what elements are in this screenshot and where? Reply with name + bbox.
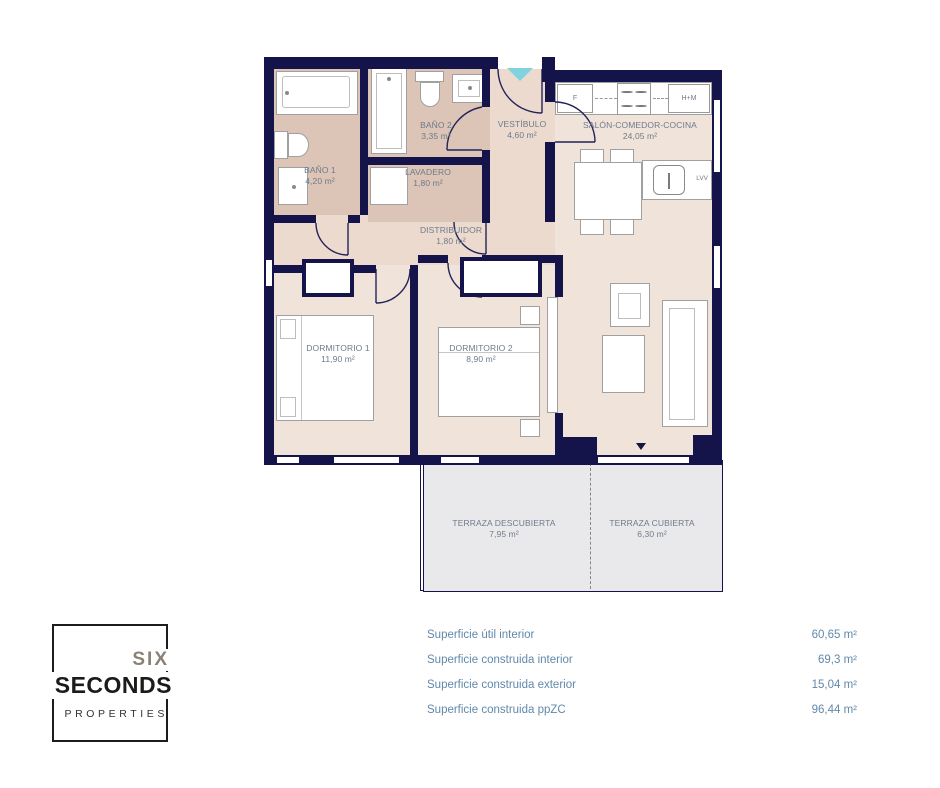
room-label-dorm2: DORMITORIO 28,90 m²: [426, 343, 536, 365]
room-label-bath1: BAÑO 14,20 m²: [282, 165, 358, 187]
wall-dorm1-dorm2: [410, 265, 418, 455]
wall-bath2-laundry: [368, 157, 490, 165]
window-dorm1-left: [265, 259, 273, 287]
floorplan-page: { "plan": { "rooms": { "bano1": { "name"…: [0, 0, 940, 788]
six-seconds-logo: SIX SECONDS PROPERTIES: [52, 624, 168, 742]
room-label-terrace-covered: TERRAZA CUBIERTA6,30 m²: [588, 518, 716, 540]
summary-row: Superficie construida interior 69,3 m²: [427, 647, 857, 672]
surface-summary-table: Superficie útil interior 60,65 m² Superf…: [427, 622, 857, 722]
window-salon-right-lower: [713, 245, 721, 289]
window-dorm2-bottom: [440, 456, 480, 464]
wardrobe-dorm2: [460, 257, 542, 297]
summary-value: 15,04 m²: [812, 679, 857, 691]
summary-label: Superficie construida interior: [427, 654, 573, 666]
summary-row: Superficie útil interior 60,65 m²: [427, 622, 857, 647]
wardrobe-dorm1: [302, 259, 354, 297]
wall-dorm2-salon-upper: [555, 255, 563, 297]
room-label-laundry: LAVADERO1,80 m²: [376, 167, 480, 189]
wall-bath2-vest-upper: [482, 69, 490, 107]
summary-value: 96,44 m²: [812, 704, 857, 716]
window-dorm1-corner: [276, 456, 300, 464]
wall-bath1-bottom-r: [348, 215, 360, 223]
room-label-terrace-open: TERRAZA DESCUBIERTA7,95 m²: [432, 518, 576, 540]
wall-top-left: [264, 57, 498, 69]
wall-salon-step-r: [693, 435, 722, 457]
window-salon-terrace: [597, 456, 690, 464]
room-label-salon: SALÓN-COMEDOR-COCINA24,05 m²: [564, 120, 716, 142]
wall-salon-step-l: [563, 437, 597, 457]
floor-plan: F H+M LVV BAÑO 14,20 m² BAÑO 23: [264, 57, 722, 591]
summary-value: 60,65 m²: [812, 629, 857, 641]
summary-label: Superficie construida ppZC: [427, 704, 566, 716]
room-label-distributor: DISTRIBUIDOR1,80 m²: [394, 225, 508, 247]
wall-laundry-vest: [482, 150, 490, 223]
entry-arrow-icon: [507, 68, 533, 81]
room-label-bath2: BAÑO 23,35 m²: [394, 120, 478, 142]
window-dorm1-bottom: [333, 456, 400, 464]
logo-line-six: SIX: [126, 649, 169, 671]
wall-bath1-bottom-l: [264, 215, 316, 223]
summary-label: Superficie útil interior: [427, 629, 534, 641]
summary-label: Superficie construida exterior: [427, 679, 576, 691]
room-label-vestibule: VESTÍBULO4,60 m²: [480, 119, 564, 141]
wall-dorm2-top-l: [418, 255, 448, 263]
wall-top-kitchen: [545, 70, 722, 82]
room-label-dorm1: DORMITORIO 111,90 m²: [286, 343, 390, 365]
wall-vest-kitchen: [545, 82, 555, 102]
terrace-door-arrow-icon: [636, 443, 646, 450]
logo-text: SIX SECONDS PROPERTIES: [49, 649, 172, 720]
wall-bath1-bath2: [360, 69, 368, 215]
wall-dorm2-salon-lower: [555, 413, 563, 455]
wall-vest-salon: [545, 142, 555, 222]
summary-row: Superficie construida exterior 15,04 m²: [427, 672, 857, 697]
summary-row: Superficie construida ppZC 96,44 m²: [427, 697, 857, 722]
logo-line-properties: PROPERTIES: [65, 708, 169, 720]
sliding-door-panel: [547, 297, 558, 413]
summary-value: 69,3 m²: [818, 654, 857, 666]
logo-line-seconds: SECONDS: [49, 672, 172, 699]
